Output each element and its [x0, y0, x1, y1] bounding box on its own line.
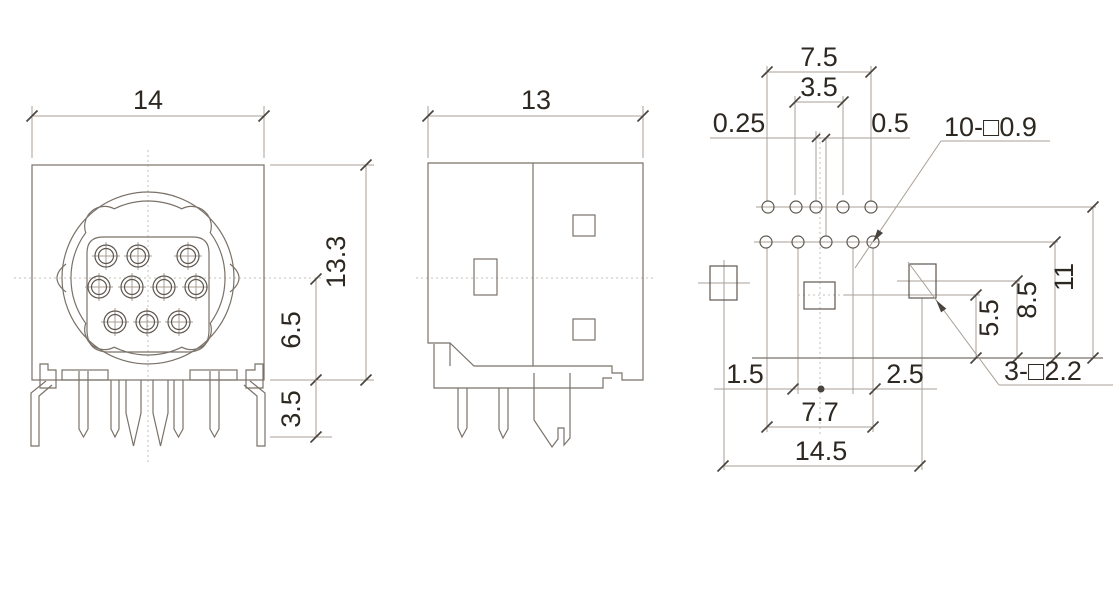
fp-dim-total-width: 14.5 — [718, 436, 926, 472]
front-dim-height: 13.3 — [270, 160, 374, 386]
fp-row-span-lower-label: 7.7 — [801, 397, 839, 427]
side-legs — [458, 373, 570, 447]
pin — [165, 308, 193, 336]
shield-leg-right — [244, 381, 265, 446]
side-window-left — [474, 259, 497, 295]
front-dim-center-to-base: 6.5 — [276, 274, 322, 386]
front-dim-width: 14 — [27, 85, 270, 158]
front-body-outline — [32, 165, 264, 380]
fp-dim-row-offsets: 0.25 0.5 — [710, 108, 910, 142]
fp-mount-holes-callout-label: 3-□2.2 — [1004, 356, 1082, 386]
datum-point — [818, 386, 825, 393]
mount-blade-leg — [534, 373, 570, 447]
fp-row-span-label: 7.5 — [800, 42, 838, 72]
connector-drawing: 14 13.3 6.5 3.5 — [0, 0, 1120, 608]
front-width-label: 14 — [133, 85, 163, 115]
fp-dim-base-offsets: 1.5 2.5 — [714, 359, 937, 395]
side-window-bottom-right — [573, 319, 595, 340]
fp-dim-height-row2: 8.5 — [1012, 237, 1061, 364]
pin — [174, 242, 202, 270]
pin — [101, 308, 129, 336]
pin-leg — [458, 388, 467, 437]
footprint-view: 7.5 3.5 0.25 0.5 10-□0.9 — [698, 42, 1113, 472]
fp-height-row2-label: 8.5 — [1012, 281, 1042, 319]
front-center-to-base-label: 6.5 — [276, 311, 306, 349]
pin-leg — [499, 388, 508, 438]
fp-dim-row-span-lower: 7.7 — [762, 397, 879, 433]
pin-leg-pointed — [153, 380, 168, 446]
front-pin-length-label: 3.5 — [276, 390, 306, 428]
side-width-label: 13 — [521, 85, 551, 115]
shield-leg-left — [31, 381, 52, 446]
side-window-top-right — [573, 215, 595, 236]
pin-leg — [174, 380, 183, 437]
pin-leg — [210, 371, 219, 437]
pin — [133, 308, 161, 336]
front-height-label: 13.3 — [321, 236, 351, 289]
pin-leg — [79, 371, 88, 437]
front-pins — [85, 242, 210, 336]
fp-height-mount-label: 5.5 — [974, 299, 1004, 337]
fp-height-row1-label: 11 — [1049, 263, 1079, 291]
side-view: 13 — [416, 85, 656, 447]
fp-total-width-label: 14.5 — [795, 436, 848, 466]
side-body-outline — [428, 163, 643, 380]
fp-base-right-label: 2.5 — [886, 359, 924, 389]
pin — [85, 273, 113, 301]
fp-row-inner-label: 3.5 — [800, 72, 838, 102]
technical-drawing-canvas: 14 13.3 6.5 3.5 — [0, 0, 1120, 608]
front-dim-pin-length: 3.5 — [270, 380, 332, 443]
fp-pin-holes-callout-label: 10-□0.9 — [944, 112, 1037, 142]
pin — [118, 273, 146, 301]
fp-base-left-label: 1.5 — [726, 359, 764, 389]
fp-row-offset-right-label: 0.5 — [871, 108, 909, 138]
shield-slot-left — [62, 370, 108, 380]
fp-dim-height-row1: 11 — [1049, 202, 1099, 364]
fp-dim-row-inner: 3.5 — [790, 72, 849, 108]
pin — [92, 242, 120, 270]
front-view: 14 13.3 6.5 3.5 — [14, 85, 374, 462]
shield-slot-right — [190, 370, 237, 380]
pin-leg — [111, 380, 119, 437]
front-pin-field-outline — [87, 237, 209, 352]
pin — [182, 273, 210, 301]
fp-row-offset-left-label: 0.25 — [713, 108, 766, 138]
side-dim-width: 13 — [423, 85, 649, 158]
pin — [150, 273, 178, 301]
pin-leg-pointed — [126, 380, 141, 446]
